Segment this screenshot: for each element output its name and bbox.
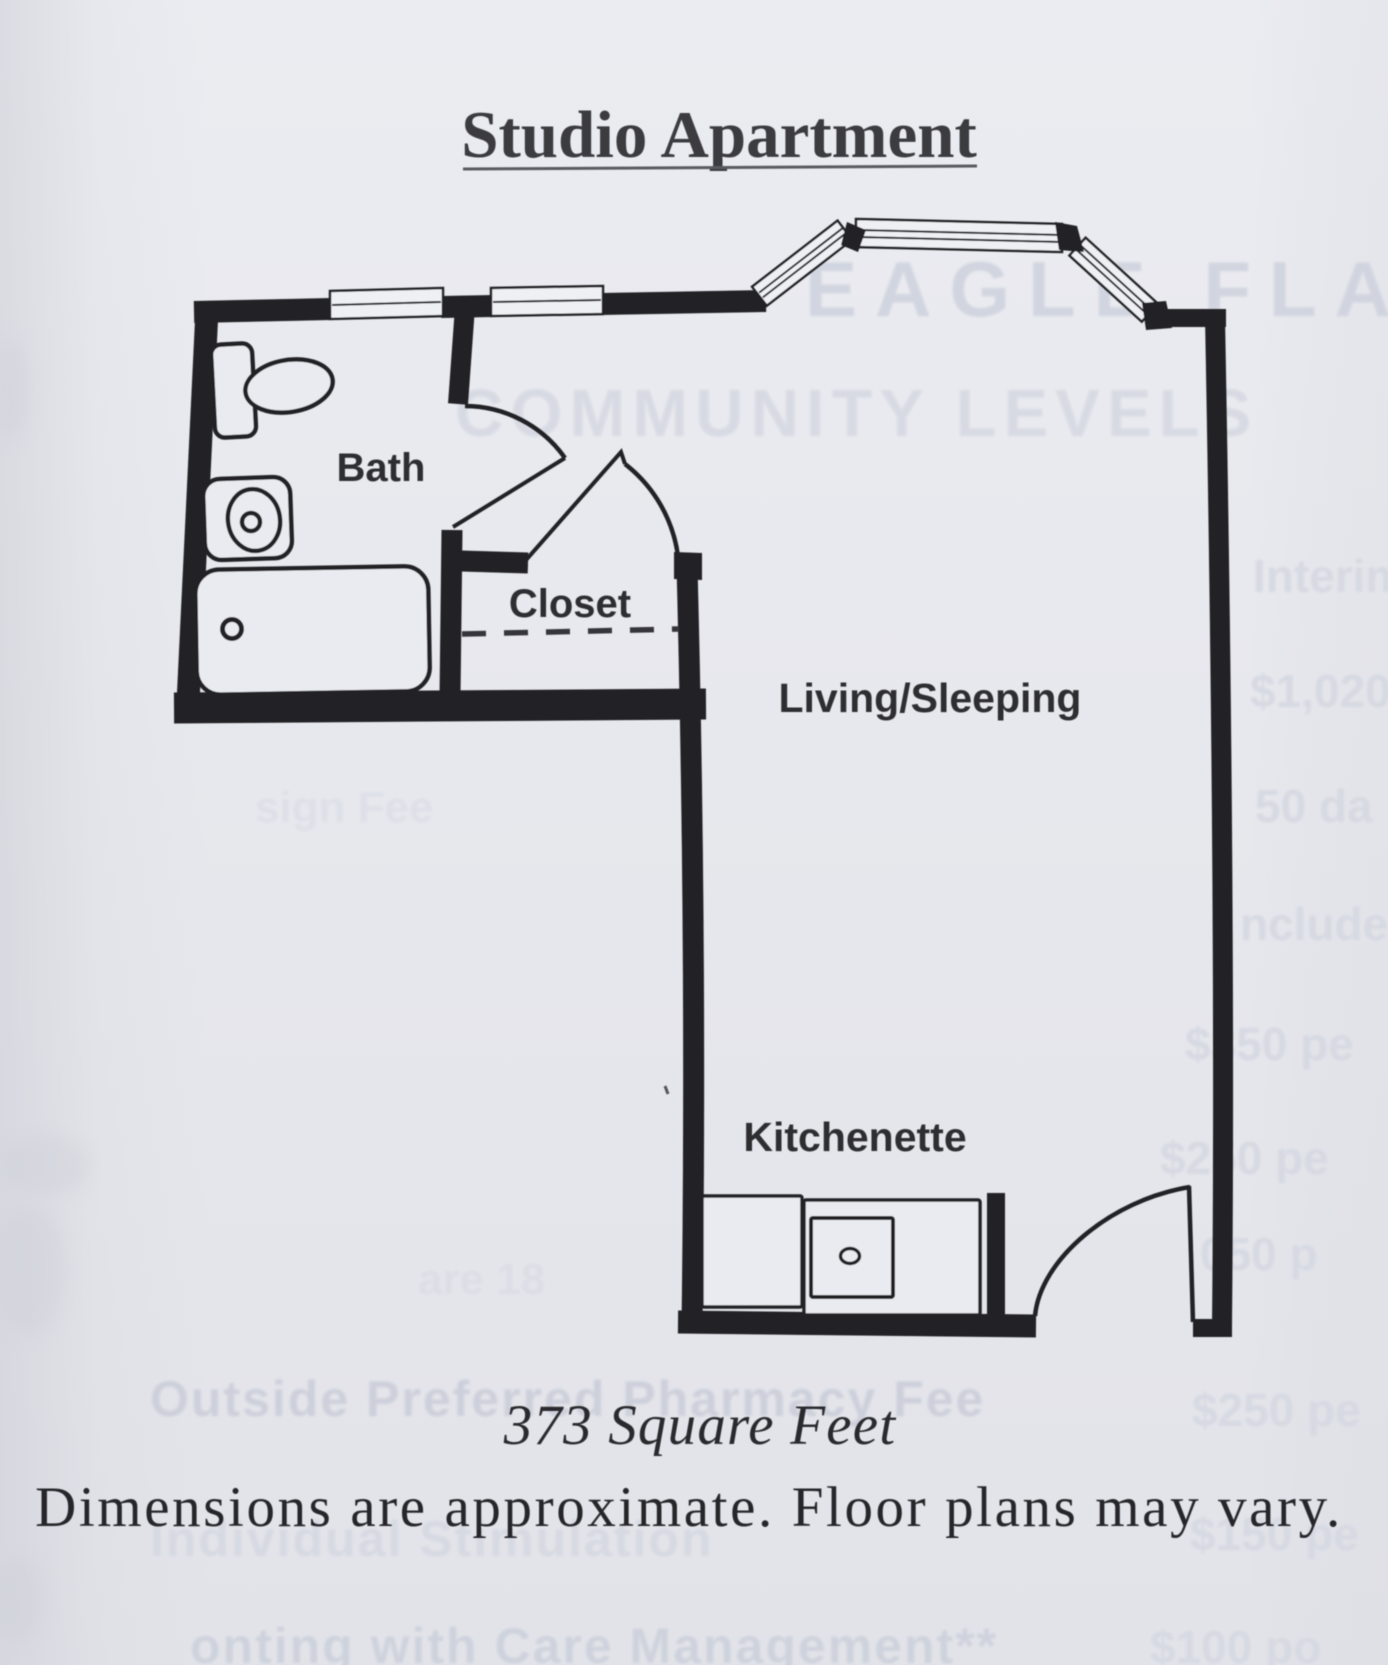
- svg-text:Bath: Bath: [337, 446, 426, 490]
- svg-text:onting with Care Management**: onting with Care Management**: [190, 1618, 998, 1665]
- svg-text:sign Fee: sign Fee: [255, 783, 434, 832]
- svg-text:Studio Apartment: Studio Apartment: [461, 98, 977, 172]
- svg-text:Living/Sleeping: Living/Sleeping: [779, 675, 1082, 721]
- svg-text:$250 pe: $250 pe: [1160, 1132, 1329, 1184]
- svg-text:are 18: are 18: [418, 1255, 545, 1304]
- svg-text:$350 pe: $350 pe: [1185, 1018, 1354, 1070]
- svg-text:COMMUNITY LEVELS: COMMUNITY LEVELS: [455, 376, 1258, 451]
- svg-text:$100 po: $100 po: [1150, 1621, 1321, 1665]
- svg-text:$250 pe: $250 pe: [1192, 1384, 1361, 1436]
- svg-text:373 Square Feet: 373 Square Feet: [503, 1394, 897, 1457]
- svg-text:Dimensions are approximate. Fl: Dimensions are approximate. Floor plans …: [35, 1476, 1343, 1539]
- svg-text:50 da: 50 da: [1255, 780, 1373, 832]
- svg-text:Interim p: Interim p: [1253, 550, 1388, 602]
- svg-text:Kitchenette: Kitchenette: [743, 1114, 966, 1160]
- svg-text:$1,020 (: $1,020 (: [1250, 665, 1388, 717]
- svg-text:Closet: Closet: [509, 582, 631, 626]
- svg-text:ncludes: ncludes: [1240, 898, 1388, 950]
